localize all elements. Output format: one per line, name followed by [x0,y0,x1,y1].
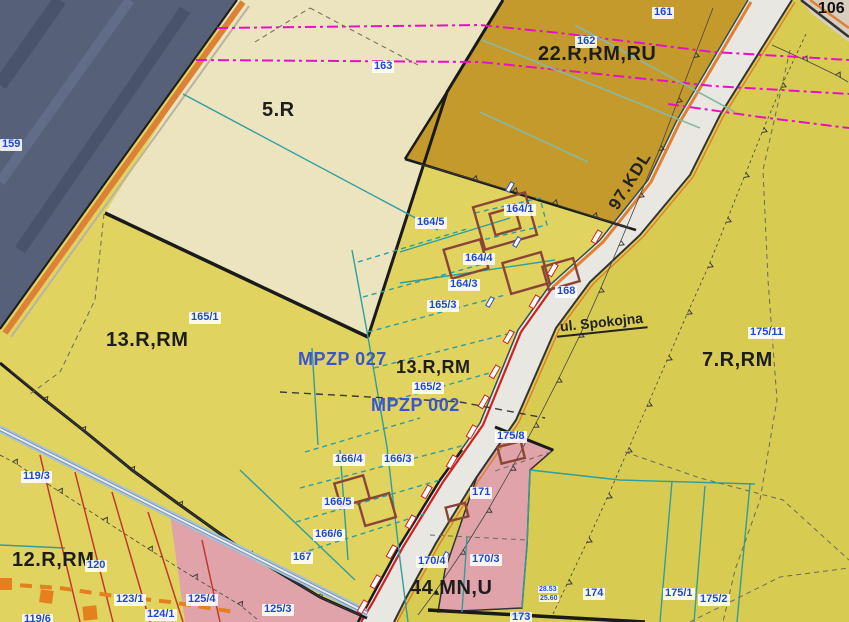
parcel-label-166-5: 166/5 [322,497,354,509]
zone-label-5r: 5.R [262,100,295,121]
parcel-label-170-3: 170/3 [470,554,502,566]
parcel-label-175-2: 175/2 [698,594,730,606]
parcel-label-164-4: 164/4 [463,253,495,265]
parcel-label-166-4: 166/4 [333,454,365,466]
parcel-label-164-1: 164/1 [504,204,536,216]
parcel-label-174: 174 [583,588,605,600]
parcel-label-166-6: 166/6 [313,529,345,541]
zone-label-13rrm-center: 13.R,RM [396,358,471,377]
parcel-label-120: 120 [85,560,107,572]
parcel-label-165-2: 165/2 [412,382,444,394]
parcel-label-165-1: 165/1 [189,312,221,324]
measurement-label: 25.60 [539,595,559,602]
parcel-label-171: 171 [470,487,492,499]
measurement-label: 28.53 [538,586,558,593]
parcel-label-165-3: 165/3 [427,300,459,312]
parcel-label-119-3: 119/3 [21,471,52,483]
parcel-label-119-6: 119/6 [22,614,53,622]
parcel-label-163: 163 [372,61,394,73]
zone-label-12rrm: 12.R,RM [12,550,94,571]
zoning-map: 5.R 22.R,RM,RU 13.R,RM 13.R,RM 7.R,RM 12… [0,0,849,622]
parcel-label-162: 162 [575,36,597,48]
zone-label-22rrmru: 22.R,RM,RU [538,44,656,65]
zone-label-7rrm: 7.R,RM [702,350,773,371]
plan-label-mpzp002: MPZP 002 [371,396,460,415]
parcel-label-175-11: 175/11 [748,327,785,339]
parcel-label-164-3: 164/3 [448,279,480,291]
orange-square [82,605,97,620]
parcel-label-168: 168 [555,286,577,298]
plan-label-mpzp027: MPZP 027 [298,350,387,369]
parcel-label-170-4: 170/4 [416,556,448,568]
parcel-label-164-5: 164/5 [415,217,447,229]
parcel-label-125-4: 125/4 [186,594,218,606]
parcel-label-175-1: 175/1 [663,588,695,600]
parcel-label-173: 173 [510,612,532,622]
parcel-label-159: 159 [0,139,22,151]
orange-square [39,589,54,604]
map-canvas [0,0,849,622]
parcel-label-167: 167 [291,552,313,564]
parcel-label-125-3: 125/3 [262,604,294,616]
parcel-label-124-1: 124/1 [145,609,177,621]
parcel-label-166-3: 166/3 [382,454,414,466]
parcel-label-175-8: 175/8 [495,431,527,443]
road-label-106: 106 [818,1,845,18]
orange-square [0,578,12,590]
parcel-label-161: 161 [652,7,674,19]
zone-label-13rrm-left: 13.R,RM [106,330,188,351]
parcel-label-123-1: 123/1 [114,594,146,606]
zone-label-44mnu: 44.MN,U [410,578,492,599]
